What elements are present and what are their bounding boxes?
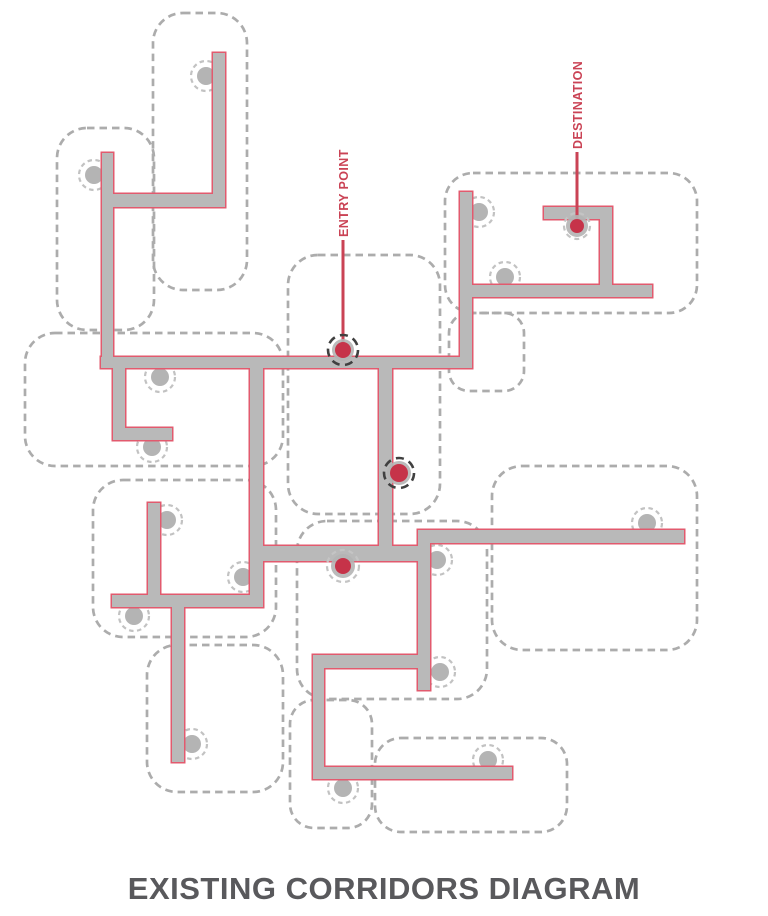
corridor-segment-8 [112, 595, 263, 607]
corridor-segment-20 [600, 207, 612, 297]
room-outline-12 [492, 466, 697, 650]
room-outline-9 [375, 738, 567, 832]
entry-point-label: ENTRY POINT [337, 149, 351, 237]
corridor-segment-9 [148, 503, 160, 607]
corridor-segment-17 [313, 767, 512, 779]
node-dot-15 [334, 779, 352, 797]
room-outline-5 [147, 645, 283, 792]
corridor-segment-1 [102, 153, 113, 368]
corridor-segment-10 [172, 607, 184, 762]
corridor-segment-7 [250, 368, 263, 607]
room-outline-1 [153, 13, 247, 290]
node-dot-10 [496, 268, 514, 286]
node-dot-3 [151, 368, 169, 386]
waypoint-dot-upper [390, 464, 408, 482]
waypoint-dot-lower [335, 558, 351, 574]
corridor-segment-15 [313, 655, 430, 668]
destination-dot [570, 219, 584, 233]
corridor-segment-16 [313, 655, 324, 779]
corridor-segment-6 [113, 428, 172, 440]
corridor-segment-4 [101, 357, 472, 368]
corridor-diagram-canvas: ENTRY POINTDESTINATION EXISTING CORRIDOR… [0, 0, 768, 916]
corridor-segment-2 [102, 194, 225, 207]
destination-label: DESTINATION [571, 61, 585, 149]
node-dot-7 [125, 607, 143, 625]
corridor-segment-18 [460, 192, 472, 368]
corridor-segment-14 [418, 530, 684, 543]
corridor-segment-19 [460, 285, 652, 297]
room-outline-6 [288, 255, 440, 514]
entry-point-dot [335, 342, 351, 358]
corridor-segment-3 [213, 53, 225, 207]
node-dot-8 [183, 735, 201, 753]
corridor-outline-layer [101, 53, 684, 779]
diagram-title: EXISTING CORRIDORS DIAGRAM [128, 871, 640, 906]
node-dot-2 [85, 166, 103, 184]
existing-corridors-diagram: ENTRY POINTDESTINATION EXISTING CORRIDOR… [0, 0, 768, 916]
node-dot-13 [431, 663, 449, 681]
room-outline-8 [290, 700, 372, 828]
